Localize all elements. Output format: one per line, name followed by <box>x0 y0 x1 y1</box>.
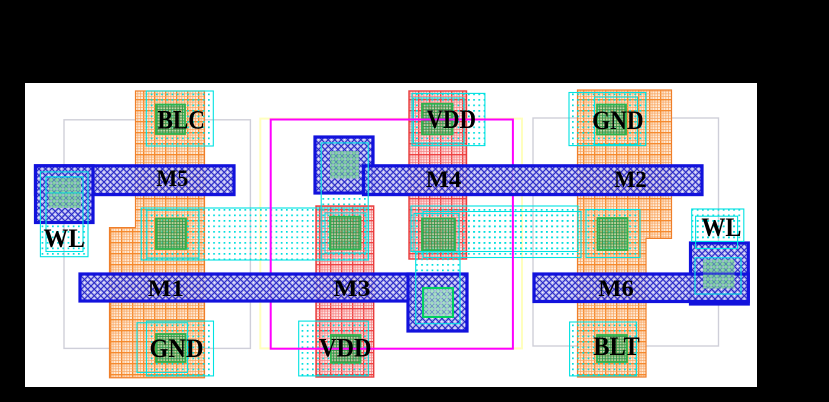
svg-text:M5: M5 <box>156 166 188 191</box>
svg-text:M3: M3 <box>333 276 370 301</box>
svg-text:VDD: VDD <box>319 334 372 363</box>
svg-text:M1: M1 <box>148 276 184 301</box>
svg-text:M4: M4 <box>426 167 462 192</box>
svg-text:GND: GND <box>150 334 204 363</box>
svg-text:BLT: BLT <box>593 332 640 361</box>
svg-text:GND: GND <box>592 106 644 135</box>
svg-text:M6: M6 <box>598 276 634 301</box>
svg-text:WL: WL <box>44 224 85 253</box>
svg-text:BLC: BLC <box>158 106 205 135</box>
svg-text:M2: M2 <box>614 167 647 192</box>
svg-text:VDD: VDD <box>427 105 477 134</box>
svg-text:WL: WL <box>701 213 741 242</box>
